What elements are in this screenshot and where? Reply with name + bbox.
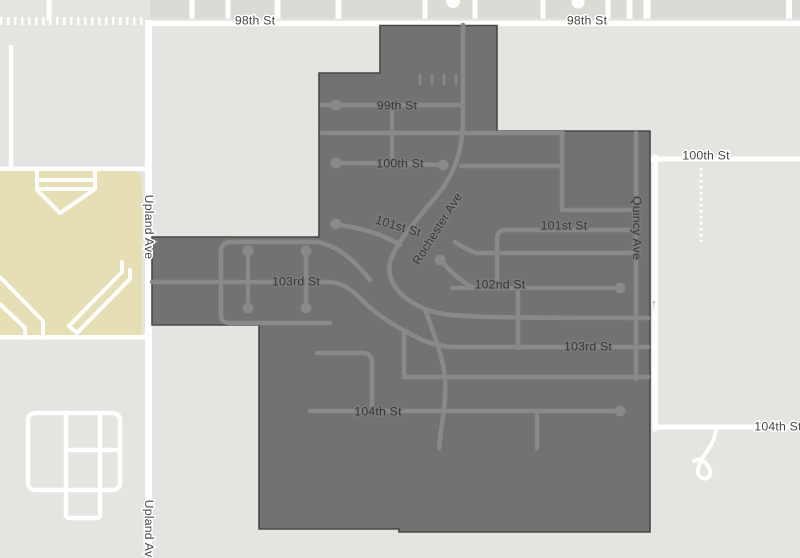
street-label-102nd-st: 102nd St	[475, 277, 526, 291]
street-label-98th-st: 98th St	[567, 13, 608, 27]
street-label-upland-ave: Upland Ave	[142, 195, 156, 260]
park-area	[0, 170, 142, 338]
one-way-arrow-icon: ↑	[651, 296, 658, 311]
street-label-upland-ave: Upland Ave	[142, 500, 156, 558]
street-label-103rd-st: 103rd St	[564, 339, 612, 353]
street-label-103rd-st: 103rd St	[272, 274, 320, 288]
street-label-99th-st: 99th St	[377, 98, 418, 112]
street-label-100th-st: 100th St	[682, 148, 730, 162]
street-label-101st-st: 101st St	[541, 218, 588, 232]
city-blocks-north	[49, 0, 800, 21]
map-viewport[interactable]: ↑ 98th St98th St100th St104th StUpland A…	[0, 0, 800, 558]
street-label-quincy-ave: Quincy Ave	[630, 196, 644, 260]
street-label-104th-st: 104th St	[754, 419, 800, 433]
street-label-100th-st: 100th St	[376, 156, 424, 170]
street-label-104th-st: 104th St	[354, 404, 402, 418]
street-label-98th-st: 98th St	[235, 13, 276, 27]
map-canvas[interactable]: ↑ 98th St98th St100th St104th StUpland A…	[0, 0, 800, 558]
